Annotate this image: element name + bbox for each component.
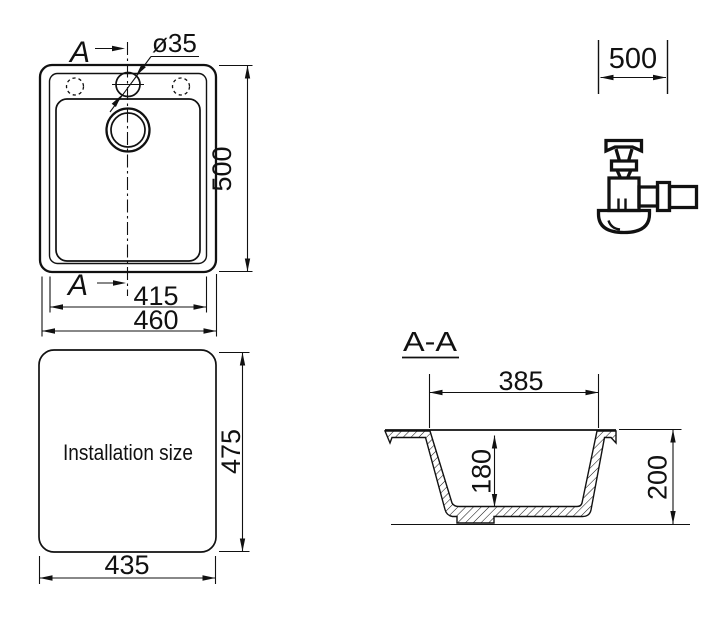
- dimension-arrow: [492, 436, 497, 449]
- siphon-collar: [612, 161, 637, 170]
- dimension-arrow: [194, 304, 207, 309]
- section-view: A-A 385 180 200: [385, 326, 690, 525]
- dimension-arrow: [601, 75, 614, 80]
- siphon-funnel: [606, 141, 642, 152]
- dimension-arrow: [430, 390, 443, 395]
- dimension-value: 460: [133, 305, 178, 335]
- dimension-arrow: [670, 511, 675, 524]
- dimension-arrow: [203, 575, 216, 580]
- plan-view: A A ø35 415: [40, 28, 253, 337]
- siphon-outlet-pipe: [639, 187, 658, 206]
- siphon-neck-line: [616, 149, 620, 161]
- siphon-cup: [599, 211, 650, 233]
- section-title: A-A: [403, 326, 457, 357]
- dim-install-depth-475: 475: [216, 353, 250, 552]
- dim-overall-height-200: 200: [619, 430, 682, 525]
- dimension-arrow: [40, 575, 53, 580]
- installation-label: Installation size: [63, 440, 193, 465]
- cabinet-width-dimension: 500: [599, 40, 668, 94]
- siphon-drain-trap-icon: [599, 141, 697, 233]
- siphon-neck-line: [629, 149, 633, 161]
- dim-overall-depth-500: 500: [207, 66, 253, 272]
- dimension-arrow: [204, 328, 217, 333]
- section-material-profile: [385, 431, 616, 523]
- siphon-outlet-flange: [658, 183, 670, 211]
- dimension-arrow: [586, 390, 599, 395]
- sink-technical-drawing: A A ø35 415: [0, 0, 720, 621]
- section-letter-top: A: [68, 36, 90, 69]
- optional-hole-left-dashed-circle: [67, 78, 84, 95]
- drawing-sheet: A A ø35 415: [0, 0, 720, 621]
- dim-bowl-top-width-385: 385: [430, 366, 599, 428]
- dimension-arrow: [245, 66, 250, 79]
- optional-hole-right-dashed-circle: [173, 78, 190, 95]
- dimension-arrow: [50, 304, 63, 309]
- dimension-arrow: [670, 430, 675, 443]
- siphon-cup-arc: [609, 221, 621, 230]
- installation-view: Installation size 475 435: [39, 350, 250, 584]
- dimension-arrow: [240, 539, 245, 552]
- siphon-outlet-nozzle: [670, 187, 697, 208]
- section-letter-bottom: A: [66, 269, 88, 302]
- cabinet-width-value: 500: [609, 43, 657, 75]
- leader-arrow-head: [112, 95, 122, 107]
- dimension-value: 385: [498, 366, 543, 396]
- dimension-value: 200: [643, 455, 673, 500]
- dimension-arrow: [240, 353, 245, 366]
- section-arrow-head: [113, 280, 126, 285]
- section-arrow-head: [112, 46, 125, 51]
- dimension-value: 500: [207, 146, 237, 191]
- dimension-arrow: [245, 259, 250, 272]
- dimension-value: 435: [104, 550, 149, 580]
- dimension-arrow: [42, 328, 55, 333]
- dim-install-width-435: 435: [40, 550, 216, 584]
- dim-bowl-depth-180: 180: [467, 436, 498, 508]
- siphon-body: [609, 178, 639, 211]
- dimension-value: 180: [467, 449, 497, 494]
- dimension-arrow: [492, 494, 497, 507]
- dimension-value: 475: [216, 429, 246, 474]
- diameter-label: ø35: [152, 28, 197, 58]
- section-cut-marker-bottom: A: [66, 269, 126, 302]
- section-title-block: A-A: [402, 326, 459, 358]
- dimension-arrow: [653, 75, 666, 80]
